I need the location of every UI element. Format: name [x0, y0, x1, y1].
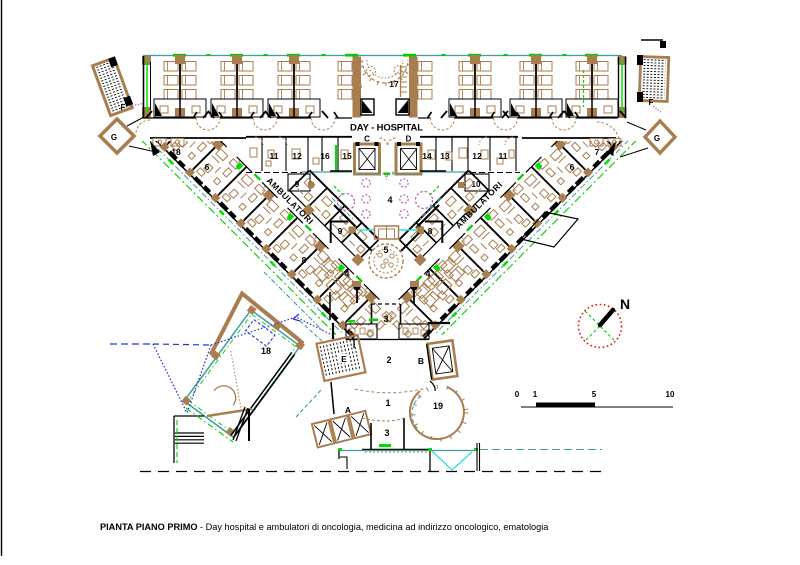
svg-text:G: G: [654, 134, 660, 143]
svg-text:PIANTA PIANO PRIMO - Day hospi: PIANTA PIANO PRIMO - Day hospital e ambu…: [100, 522, 549, 532]
svg-text:14: 14: [422, 151, 432, 161]
svg-text:5: 5: [592, 390, 597, 399]
svg-text:E: E: [341, 354, 347, 364]
svg-text:1: 1: [385, 398, 390, 408]
svg-text:D: D: [406, 135, 412, 144]
svg-text:13: 13: [440, 151, 450, 161]
svg-text:15: 15: [342, 151, 352, 161]
svg-text:4: 4: [387, 195, 392, 205]
svg-text:4: 4: [344, 269, 349, 279]
svg-text:12: 12: [292, 151, 302, 161]
svg-text:5: 5: [383, 245, 388, 255]
svg-text:F: F: [121, 103, 126, 112]
svg-text:8: 8: [302, 255, 307, 265]
svg-text:17: 17: [389, 79, 399, 89]
svg-text:N: N: [620, 296, 630, 312]
svg-text:4: 4: [425, 269, 430, 279]
svg-text:A: A: [345, 405, 351, 415]
svg-text:8: 8: [428, 226, 433, 236]
svg-text:16: 16: [320, 151, 330, 161]
svg-text:2: 2: [386, 355, 391, 365]
svg-text:19: 19: [433, 401, 443, 411]
svg-text:DAY - HOSPITAL: DAY - HOSPITAL: [350, 123, 423, 134]
svg-text:9: 9: [338, 226, 343, 236]
svg-text:10: 10: [666, 390, 675, 399]
svg-text:11: 11: [270, 151, 279, 161]
svg-text:6: 6: [570, 162, 575, 172]
svg-text:6: 6: [205, 162, 210, 172]
svg-text:18: 18: [171, 147, 181, 157]
svg-text:G: G: [111, 133, 117, 142]
svg-text:C: C: [364, 135, 370, 144]
svg-text:7: 7: [595, 147, 600, 157]
svg-text:B: B: [418, 356, 424, 366]
svg-text:1: 1: [533, 390, 538, 399]
svg-text:12: 12: [472, 151, 482, 161]
svg-text:F: F: [649, 98, 654, 107]
svg-text:18: 18: [261, 346, 271, 356]
svg-text:0: 0: [515, 390, 520, 399]
svg-text:3: 3: [384, 428, 389, 438]
svg-text:3: 3: [383, 314, 388, 324]
svg-text:11: 11: [499, 151, 508, 161]
